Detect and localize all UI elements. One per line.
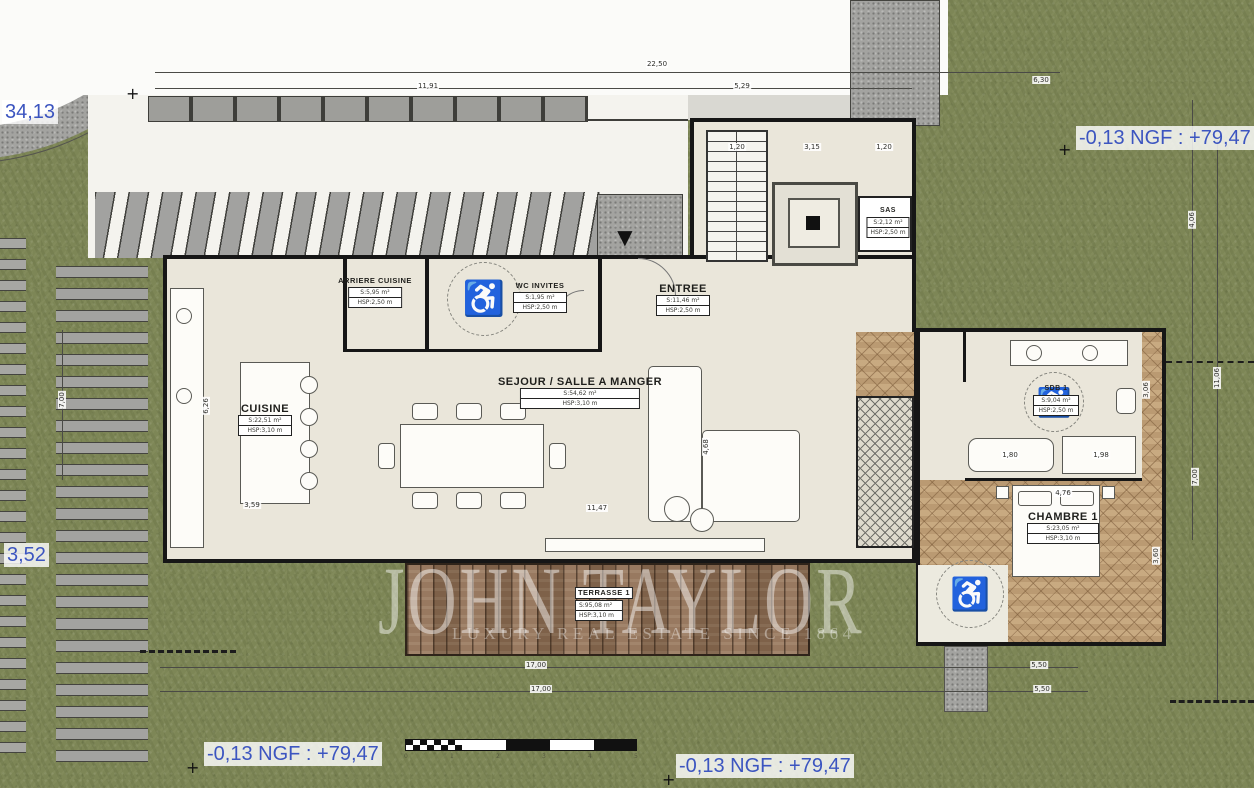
room-ceiling-height: HSP:2,50 m — [514, 303, 566, 312]
room-name: ENTREE — [659, 284, 707, 294]
nightstand — [996, 486, 1009, 499]
dimension-label: 17,00 — [525, 661, 547, 669]
dimension-label: 1,20 — [875, 143, 893, 151]
elevation-label-bottom-center: -0,13 NGF : +79,47 — [676, 754, 854, 778]
dimension-line — [155, 72, 1060, 73]
wheelchair-icon: ♿ — [936, 560, 1004, 628]
dimension-label: 5,50 — [1030, 661, 1048, 669]
tv-cabinet — [545, 538, 765, 552]
dining-chair — [500, 492, 526, 509]
dimension-line — [160, 691, 1088, 692]
room-name: SEJOUR / SALLE A MANGER — [498, 377, 662, 387]
room-area: S:2,12 m² — [867, 218, 908, 228]
room-ceiling-height: HSP:2,50 m — [867, 228, 908, 237]
dimension-label: 7,00 — [58, 391, 66, 409]
room-info-box: S:11,46 m² HSP:2,50 m — [656, 295, 710, 316]
elevation-label-bottom-left: -0,13 NGF : +79,47 — [204, 742, 382, 766]
dimension-line — [155, 88, 912, 89]
sink-basin — [1026, 345, 1042, 361]
dimension-label: 6,26 — [202, 397, 210, 415]
terrace-steps-left — [0, 238, 26, 762]
dining-chair — [378, 443, 395, 469]
wheelchair-glyph: ♿ — [950, 575, 990, 613]
room-label-terrasse-1: TERRASSE 1 S:95,08 m² HSP:3,10 m — [575, 587, 633, 621]
dimension-label: 3,06 — [1142, 381, 1150, 399]
room-area: S:23,05 m² — [1028, 524, 1098, 534]
elevation-label-top-left: 34,13 — [2, 100, 58, 124]
wall-wc-left — [425, 258, 429, 352]
room-label-sdb-1: SDB 1 S:9,04 m² HSP:2,50 m — [1033, 384, 1079, 416]
kitchen-counter — [170, 288, 204, 548]
room-area: S:11,46 m² — [657, 296, 709, 306]
dimension-label: 5,50 — [1033, 685, 1051, 693]
room-ceiling-height: HSP:3,10 m — [239, 426, 291, 435]
survey-cross-icon: + — [662, 770, 675, 788]
scale-bar-checks — [406, 740, 462, 750]
room-label-wc-invites: WC INVITES S:1,95 m² HSP:2,50 m — [513, 281, 567, 313]
island-stool — [300, 408, 318, 426]
staircase-stringer — [736, 132, 737, 260]
room-name: SDB 1 — [1044, 384, 1067, 394]
room-area: S:5,95 m² — [349, 288, 401, 298]
room-name: WC INVITES — [516, 281, 565, 291]
parking-stripes — [95, 192, 600, 258]
room-info-box: S:22,51 m² HSP:3,10 m — [238, 415, 292, 436]
cross-glyph: + — [126, 84, 139, 103]
room-label-cuisine: CUISINE S:22,51 m² HSP:3,10 m — [238, 404, 292, 436]
north-wall-bar — [850, 0, 940, 126]
coffee-table — [664, 496, 690, 522]
dining-chair — [412, 492, 438, 509]
bed-pillow — [1018, 491, 1052, 506]
room-name: ARRIERE CUISINE — [338, 276, 412, 286]
kitchen-cooktop — [176, 388, 192, 404]
dimension-label: 5,29 — [733, 82, 751, 90]
dimension-line — [160, 667, 1078, 668]
dining-chair — [456, 492, 482, 509]
island-stool — [300, 440, 318, 458]
scale-number: 3 — [542, 753, 546, 760]
entrance-arrow-icon: ▼ — [612, 224, 638, 250]
room-ceiling-height: HSP:3,10 m — [576, 611, 622, 620]
dimension-label: 3,60 — [1152, 547, 1160, 565]
room-area: S:54,62 m² — [521, 389, 639, 399]
dimension-label: 6,30 — [1032, 76, 1050, 84]
garden-path — [944, 646, 988, 712]
room-label-sejour: SEJOUR / SALLE A MANGER S:54,62 m² HSP:3… — [498, 377, 662, 409]
elevation-label-top-right: -0,13 NGF : +79,47 — [1076, 126, 1254, 150]
room-ceiling-height: HSP:2,50 m — [349, 298, 401, 307]
top-white-strip — [0, 0, 948, 95]
elevation-label-left: 3,52 — [4, 543, 49, 567]
wall-sdb-left — [963, 332, 966, 382]
wall-service-row — [343, 349, 602, 352]
coffee-table — [690, 508, 714, 532]
property-line-bottom-right — [1170, 700, 1254, 703]
room-area: S:1,95 m² — [514, 293, 566, 303]
room-name: CHAMBRE 1 — [1028, 512, 1098, 522]
survey-cross-icon: + — [126, 84, 139, 103]
room-info-box: S:95,08 m² HSP:3,10 m — [575, 600, 623, 621]
toilet — [1116, 388, 1136, 414]
room-ceiling-height: HSP:2,50 m — [657, 306, 709, 315]
patio-planter-core — [806, 216, 820, 230]
room-label-chambre-1: CHAMBRE 1 S:23,05 m² HSP:3,10 m — [1027, 512, 1099, 544]
room-name: CUISINE — [241, 404, 289, 414]
property-line-bottom-left — [140, 650, 236, 653]
dimension-line — [1217, 140, 1218, 700]
cross-glyph: + — [1058, 140, 1071, 159]
carport-slab — [597, 194, 683, 256]
dimension-label: 1,80 — [1001, 451, 1019, 459]
room-label-sas: SAS S:2,12 m² HSP:2,50 m — [866, 206, 909, 238]
scale-bar — [405, 739, 637, 751]
dimension-label: 17,00 — [530, 685, 552, 693]
dimension-label: 11,06 — [1213, 367, 1221, 389]
sofa-section-horizontal — [702, 430, 800, 522]
room-info-box: S:5,95 m² HSP:2,50 m — [348, 287, 402, 308]
hatched-shaft — [856, 396, 914, 548]
scale-bar-blocks — [462, 740, 636, 750]
dimension-label: 11,91 — [417, 82, 439, 90]
dimension-label: 1,20 — [728, 143, 746, 151]
scale-number: 0 — [404, 753, 408, 760]
property-line-right — [1166, 361, 1254, 363]
sink-basin — [1082, 345, 1098, 361]
dimension-label: 1,98 — [1092, 451, 1110, 459]
room-ceiling-height: HSP:3,10 m — [521, 399, 639, 408]
dimension-label: 7,00 — [1191, 468, 1199, 486]
room-info-box: S:54,62 m² HSP:3,10 m — [520, 388, 640, 409]
cross-glyph: + — [662, 770, 675, 788]
scale-number: 2 — [496, 753, 500, 760]
room-info-box: S:1,95 m² HSP:2,50 m — [513, 292, 567, 313]
island-stool — [300, 376, 318, 394]
entrance-arrow-glyph: ▼ — [612, 222, 638, 252]
room-name: SAS — [880, 206, 896, 216]
room-ceiling-height: HSP:3,10 m — [1028, 534, 1098, 543]
cross-glyph: + — [186, 758, 199, 777]
room-area: S:22,51 m² — [239, 416, 291, 426]
hall-wood-floor — [856, 332, 914, 396]
dining-chair — [412, 403, 438, 420]
wall-wc-right — [598, 258, 602, 352]
dimension-label: 3,59 — [243, 501, 261, 509]
terrace-steps-bank — [56, 266, 148, 764]
survey-cross-icon: + — [186, 758, 199, 777]
dimension-label: 22,50 — [646, 60, 668, 68]
dimension-label: 4,76 — [1054, 489, 1072, 497]
room-area: S:9,04 m² — [1034, 396, 1078, 406]
room-name: TERRASSE 1 — [575, 587, 633, 599]
floor-plan-canvas: ♿ ♿ ♿ ▼ JOHN TAYLOR LUXURY REAL ESTATE S… — [0, 0, 1254, 788]
room-ceiling-height: HSP:2,50 m — [1034, 406, 1078, 415]
hedge-wall-line — [588, 119, 688, 121]
dimension-label: 11,47 — [586, 504, 608, 512]
room-info-box: S:9,04 m² HSP:2,50 m — [1033, 395, 1079, 416]
wheelchair-glyph: ♿ — [463, 279, 505, 319]
room-label-entree: ENTREE S:11,46 m² HSP:2,50 m — [656, 284, 710, 316]
dimension-label: 3,15 — [803, 143, 821, 151]
hedge-wall-band — [148, 96, 588, 122]
dimension-label: 4,68 — [702, 438, 710, 456]
wall-sdb-chambre — [965, 478, 1142, 481]
room-info-box: S:2,12 m² HSP:2,50 m — [866, 217, 909, 238]
scale-number: 1 — [450, 753, 454, 760]
wheelchair-icon: ♿ — [447, 262, 521, 336]
kitchen-sink — [176, 308, 192, 324]
room-label-arriere-cuisine: ARRIERE CUISINE S:5,95 m² HSP:2,50 m — [338, 276, 412, 308]
room-area: S:95,08 m² — [576, 601, 622, 611]
dining-chair — [549, 443, 566, 469]
scale-number: 4 — [588, 753, 592, 760]
nightstand — [1102, 486, 1115, 499]
room-info-box: S:23,05 m² HSP:3,10 m — [1027, 523, 1099, 544]
island-stool — [300, 472, 318, 490]
dimension-label: 4,06 — [1188, 211, 1196, 229]
dining-table — [400, 424, 544, 488]
dining-chair — [456, 403, 482, 420]
scale-number: 5 — [634, 753, 638, 760]
survey-cross-icon: + — [1058, 140, 1071, 159]
